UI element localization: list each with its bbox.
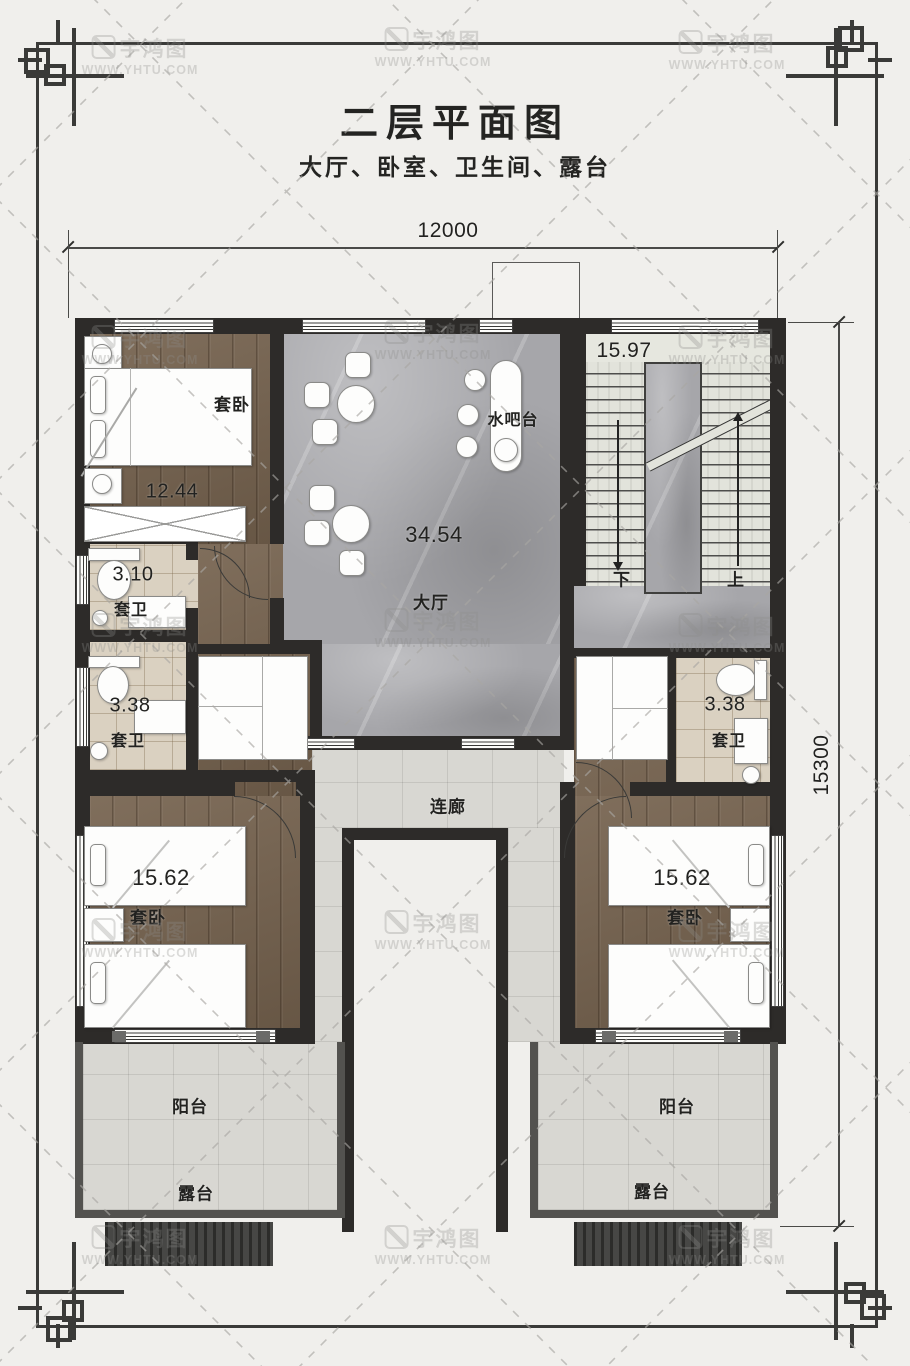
area-hall: 34.54 — [405, 522, 463, 548]
wall — [186, 608, 198, 792]
stair-landing-floor — [574, 586, 770, 650]
bar-stool — [457, 404, 479, 426]
page-subtitle: 大厅、卧室、卫生间、露台 — [0, 148, 910, 182]
wall-bedroom-br-left — [560, 782, 575, 1042]
area-bath-mr: 3.38 — [705, 694, 746, 717]
bar-stool — [456, 436, 478, 458]
bed-double — [84, 368, 252, 466]
pillow — [90, 962, 106, 1004]
eave-hatch-left — [105, 1222, 273, 1266]
window-pier — [256, 1031, 270, 1042]
hall-floor-lower — [322, 644, 564, 750]
wall-stair-left — [574, 334, 586, 586]
window-pier — [602, 1031, 616, 1042]
corner-ornament-bottom-right — [786, 1242, 898, 1354]
balcony-left-wall — [337, 1042, 345, 1218]
corridor-strip-left — [312, 828, 342, 1042]
lamp — [92, 474, 112, 494]
wall — [186, 544, 198, 560]
stair-well — [644, 362, 702, 594]
area-bath-tl: 3.10 — [113, 564, 154, 587]
floorplan-page: { "title": {"main": "二层平面图", "sub": "大厅、… — [0, 0, 910, 1366]
room-label-terrace-left: 露台 — [178, 1180, 214, 1205]
shower-head — [742, 766, 760, 784]
area-bedroom-tl: 12.44 — [146, 481, 199, 504]
window-stairs — [612, 320, 758, 332]
wall — [75, 770, 315, 782]
wall — [196, 644, 312, 654]
corner-ornament-top-left — [12, 14, 124, 126]
area-bath-ml: 3.38 — [110, 695, 151, 718]
window — [302, 739, 354, 748]
window — [480, 320, 512, 332]
lamp — [92, 344, 112, 364]
balcony-left-wall — [75, 1042, 83, 1218]
dimension-top-value: 12000 — [418, 219, 479, 243]
window — [115, 320, 213, 332]
closet-divider — [198, 706, 262, 707]
closet-divider — [262, 656, 263, 760]
bar-stool — [464, 369, 486, 391]
chair — [312, 419, 338, 445]
wall — [310, 640, 322, 750]
chair — [309, 485, 335, 511]
corner-ornament-bottom-left — [12, 1242, 124, 1354]
closet-left — [198, 656, 308, 760]
balcony-left-wall — [75, 1210, 345, 1218]
pillow — [748, 844, 764, 886]
chair — [339, 550, 365, 576]
window — [77, 668, 88, 746]
room-label-balcony-right: 阳台 — [659, 1093, 695, 1118]
stair-down-arrow — [617, 420, 619, 566]
stair-up-arrowhead — [733, 412, 743, 421]
area-bedroom-bl: 15.62 — [132, 865, 190, 891]
wall — [75, 630, 198, 642]
dimension-right-line — [838, 322, 840, 1226]
round-table — [332, 505, 370, 543]
room-label-water-bar: 水吧台 — [487, 406, 538, 430]
pillow — [90, 376, 106, 414]
dimension-right-value: 15300 — [810, 735, 834, 796]
pillow — [90, 844, 106, 886]
wall-void-right — [496, 828, 508, 1232]
window — [596, 1030, 740, 1042]
balcony-right-wall — [770, 1042, 778, 1218]
bed-single — [84, 944, 246, 1028]
corner-ornament-top-right — [786, 14, 898, 126]
closet-divider — [612, 708, 668, 709]
area-stairs: 15.97 — [596, 339, 651, 363]
blanket-line — [130, 368, 131, 466]
wall — [270, 318, 284, 544]
balcony-right-wall — [530, 1210, 778, 1218]
toilet-tank — [754, 660, 767, 700]
room-label-bedroom-bl: 套卧 — [130, 904, 166, 929]
wall-bedroom-bl-top — [75, 782, 235, 796]
room-label-bedroom-br: 套卧 — [667, 904, 703, 929]
shower-head — [92, 610, 108, 626]
balcony-right-wall — [530, 1042, 538, 1218]
stairs-up-label: 上 — [727, 566, 745, 591]
chimney-outline — [492, 262, 580, 321]
page-title: 二层平面图 — [0, 92, 910, 147]
room-label-bath-tl: 套卫 — [114, 596, 148, 620]
toilet-bowl — [716, 664, 756, 696]
window — [772, 836, 783, 1006]
dimension-extension — [777, 230, 778, 318]
dimension-extension — [68, 230, 69, 318]
stair-up-arrow — [737, 420, 739, 566]
eave-hatch-right — [574, 1222, 742, 1266]
pillow — [748, 962, 764, 1004]
dimension-top-line — [68, 247, 778, 249]
room-label-bath-ml: 套卫 — [111, 727, 145, 751]
window — [303, 320, 425, 332]
corridor-strip-right — [508, 828, 562, 1042]
shower-head — [90, 742, 108, 760]
window — [462, 739, 514, 748]
room-label-hall: 大厅 — [413, 589, 449, 614]
dimension-extension — [788, 322, 854, 323]
wall-hall-right — [560, 318, 574, 658]
room-label-bath-mr: 套卫 — [712, 727, 746, 751]
stairs-down-label: 下 — [613, 566, 631, 591]
room-label-terrace-right: 露台 — [634, 1178, 670, 1203]
room-label-bedroom-tl: 套卧 — [214, 391, 250, 416]
window-pier — [112, 1031, 126, 1042]
chair — [304, 382, 330, 408]
nightstand — [730, 908, 770, 942]
window-pier — [724, 1031, 738, 1042]
round-table — [337, 385, 375, 423]
room-label-balcony-left: 阳台 — [172, 1093, 208, 1118]
nightstand — [84, 908, 124, 942]
bar-sink — [494, 438, 518, 462]
bed-single — [608, 944, 770, 1028]
wall-bedroom-bl-right — [300, 782, 315, 1042]
wall-void-top — [342, 828, 508, 840]
window — [115, 1030, 275, 1042]
chair — [304, 520, 330, 546]
window — [77, 556, 88, 604]
wardrobe — [84, 506, 246, 542]
dimension-extension — [780, 1226, 854, 1227]
room-label-corridor: 连廊 — [430, 793, 466, 818]
wall-bedroom-br-top2 — [630, 782, 786, 796]
chair — [345, 352, 371, 378]
area-bedroom-br: 15.62 — [653, 865, 711, 891]
